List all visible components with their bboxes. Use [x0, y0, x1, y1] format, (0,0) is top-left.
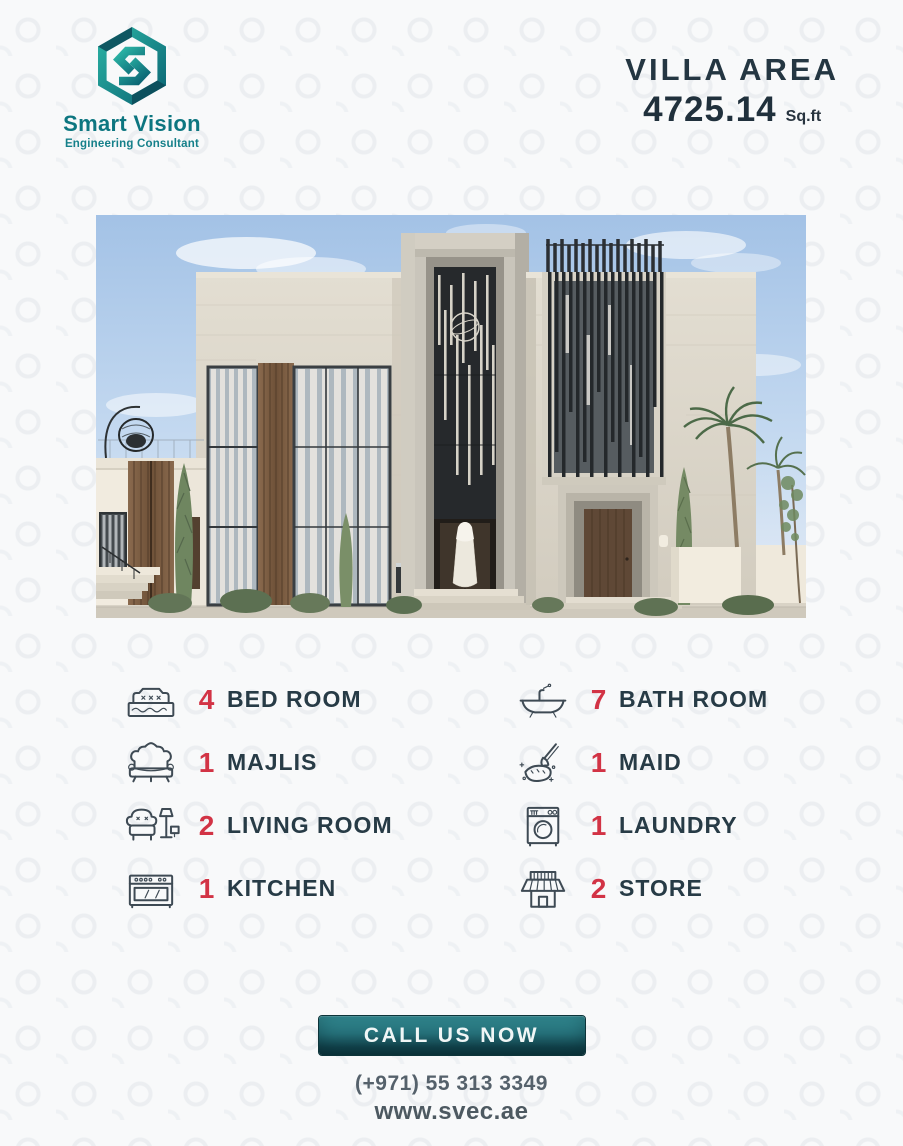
feature-living-room: 2 LIVING ROOM — [118, 794, 500, 857]
bed-icon — [118, 676, 184, 723]
stove-icon — [118, 865, 184, 912]
brand-logo: Smart Vision Engineering Consultant — [50, 24, 214, 150]
feature-count: 2 — [197, 810, 216, 842]
call-us-now-button[interactable]: CALL US NOW — [319, 1016, 585, 1055]
villa-rendering-image — [96, 215, 806, 618]
villa-rendering — [96, 215, 806, 618]
feature-count: 1 — [197, 873, 216, 905]
feature-bed-room: 4 BED ROOM — [118, 668, 500, 731]
features-right-column: 7 BATH ROOM 1 MAID — [510, 668, 820, 920]
brand-name: Smart Vision — [50, 111, 214, 137]
feature-label: MAID — [619, 749, 682, 776]
phone-number: (+971) 55 313 3349 — [0, 1072, 903, 1096]
armchair-lamp-icon — [118, 802, 184, 849]
feature-laundry: 1 LAUNDRY — [510, 794, 820, 857]
feature-maid: 1 MAID — [510, 731, 820, 794]
villa-flyer-page: Smart Vision Engineering Consultant VILL… — [0, 0, 903, 1146]
features-left-column: 4 BED ROOM 1 MAJLIS — [118, 668, 500, 920]
feature-label: MAJLIS — [227, 749, 317, 776]
bathtub-icon — [510, 676, 576, 723]
smart-vision-hexagon-logo-icon — [86, 24, 178, 110]
villa-area-unit: Sq.ft — [786, 108, 822, 126]
villa-area-label: VILLA AREA — [625, 52, 839, 88]
feature-label: BED ROOM — [227, 686, 362, 713]
feature-majlis: 1 MAJLIS — [118, 731, 500, 794]
feature-label: KITCHEN — [227, 875, 336, 902]
brand-tagline: Engineering Consultant — [50, 138, 214, 150]
feature-count: 2 — [589, 873, 608, 905]
features-section: 4 BED ROOM 1 MAJLIS — [118, 668, 828, 918]
feature-label: STORE — [619, 875, 703, 902]
feature-count: 4 — [197, 684, 216, 716]
feature-count: 7 — [589, 684, 608, 716]
feature-label: LAUNDRY — [619, 812, 738, 839]
washing-machine-icon — [510, 802, 576, 849]
villa-area-block: VILLA AREA 4725.14 Sq.ft — [625, 52, 839, 130]
feature-label: LIVING ROOM — [227, 812, 393, 839]
feature-bath-room: 7 BATH ROOM — [510, 668, 820, 731]
cleaning-icon — [510, 739, 576, 786]
feature-store: 2 STORE — [510, 857, 820, 920]
feature-count: 1 — [589, 747, 608, 779]
sofa-icon — [118, 739, 184, 786]
feature-kitchen: 1 KITCHEN — [118, 857, 500, 920]
feature-count: 1 — [197, 747, 216, 779]
storefront-icon — [510, 865, 576, 912]
villa-area-value: 4725.14 — [643, 90, 777, 130]
feature-count: 1 — [589, 810, 608, 842]
website-link[interactable]: www.svec.ae — [0, 1098, 903, 1126]
feature-label: BATH ROOM — [619, 686, 768, 713]
